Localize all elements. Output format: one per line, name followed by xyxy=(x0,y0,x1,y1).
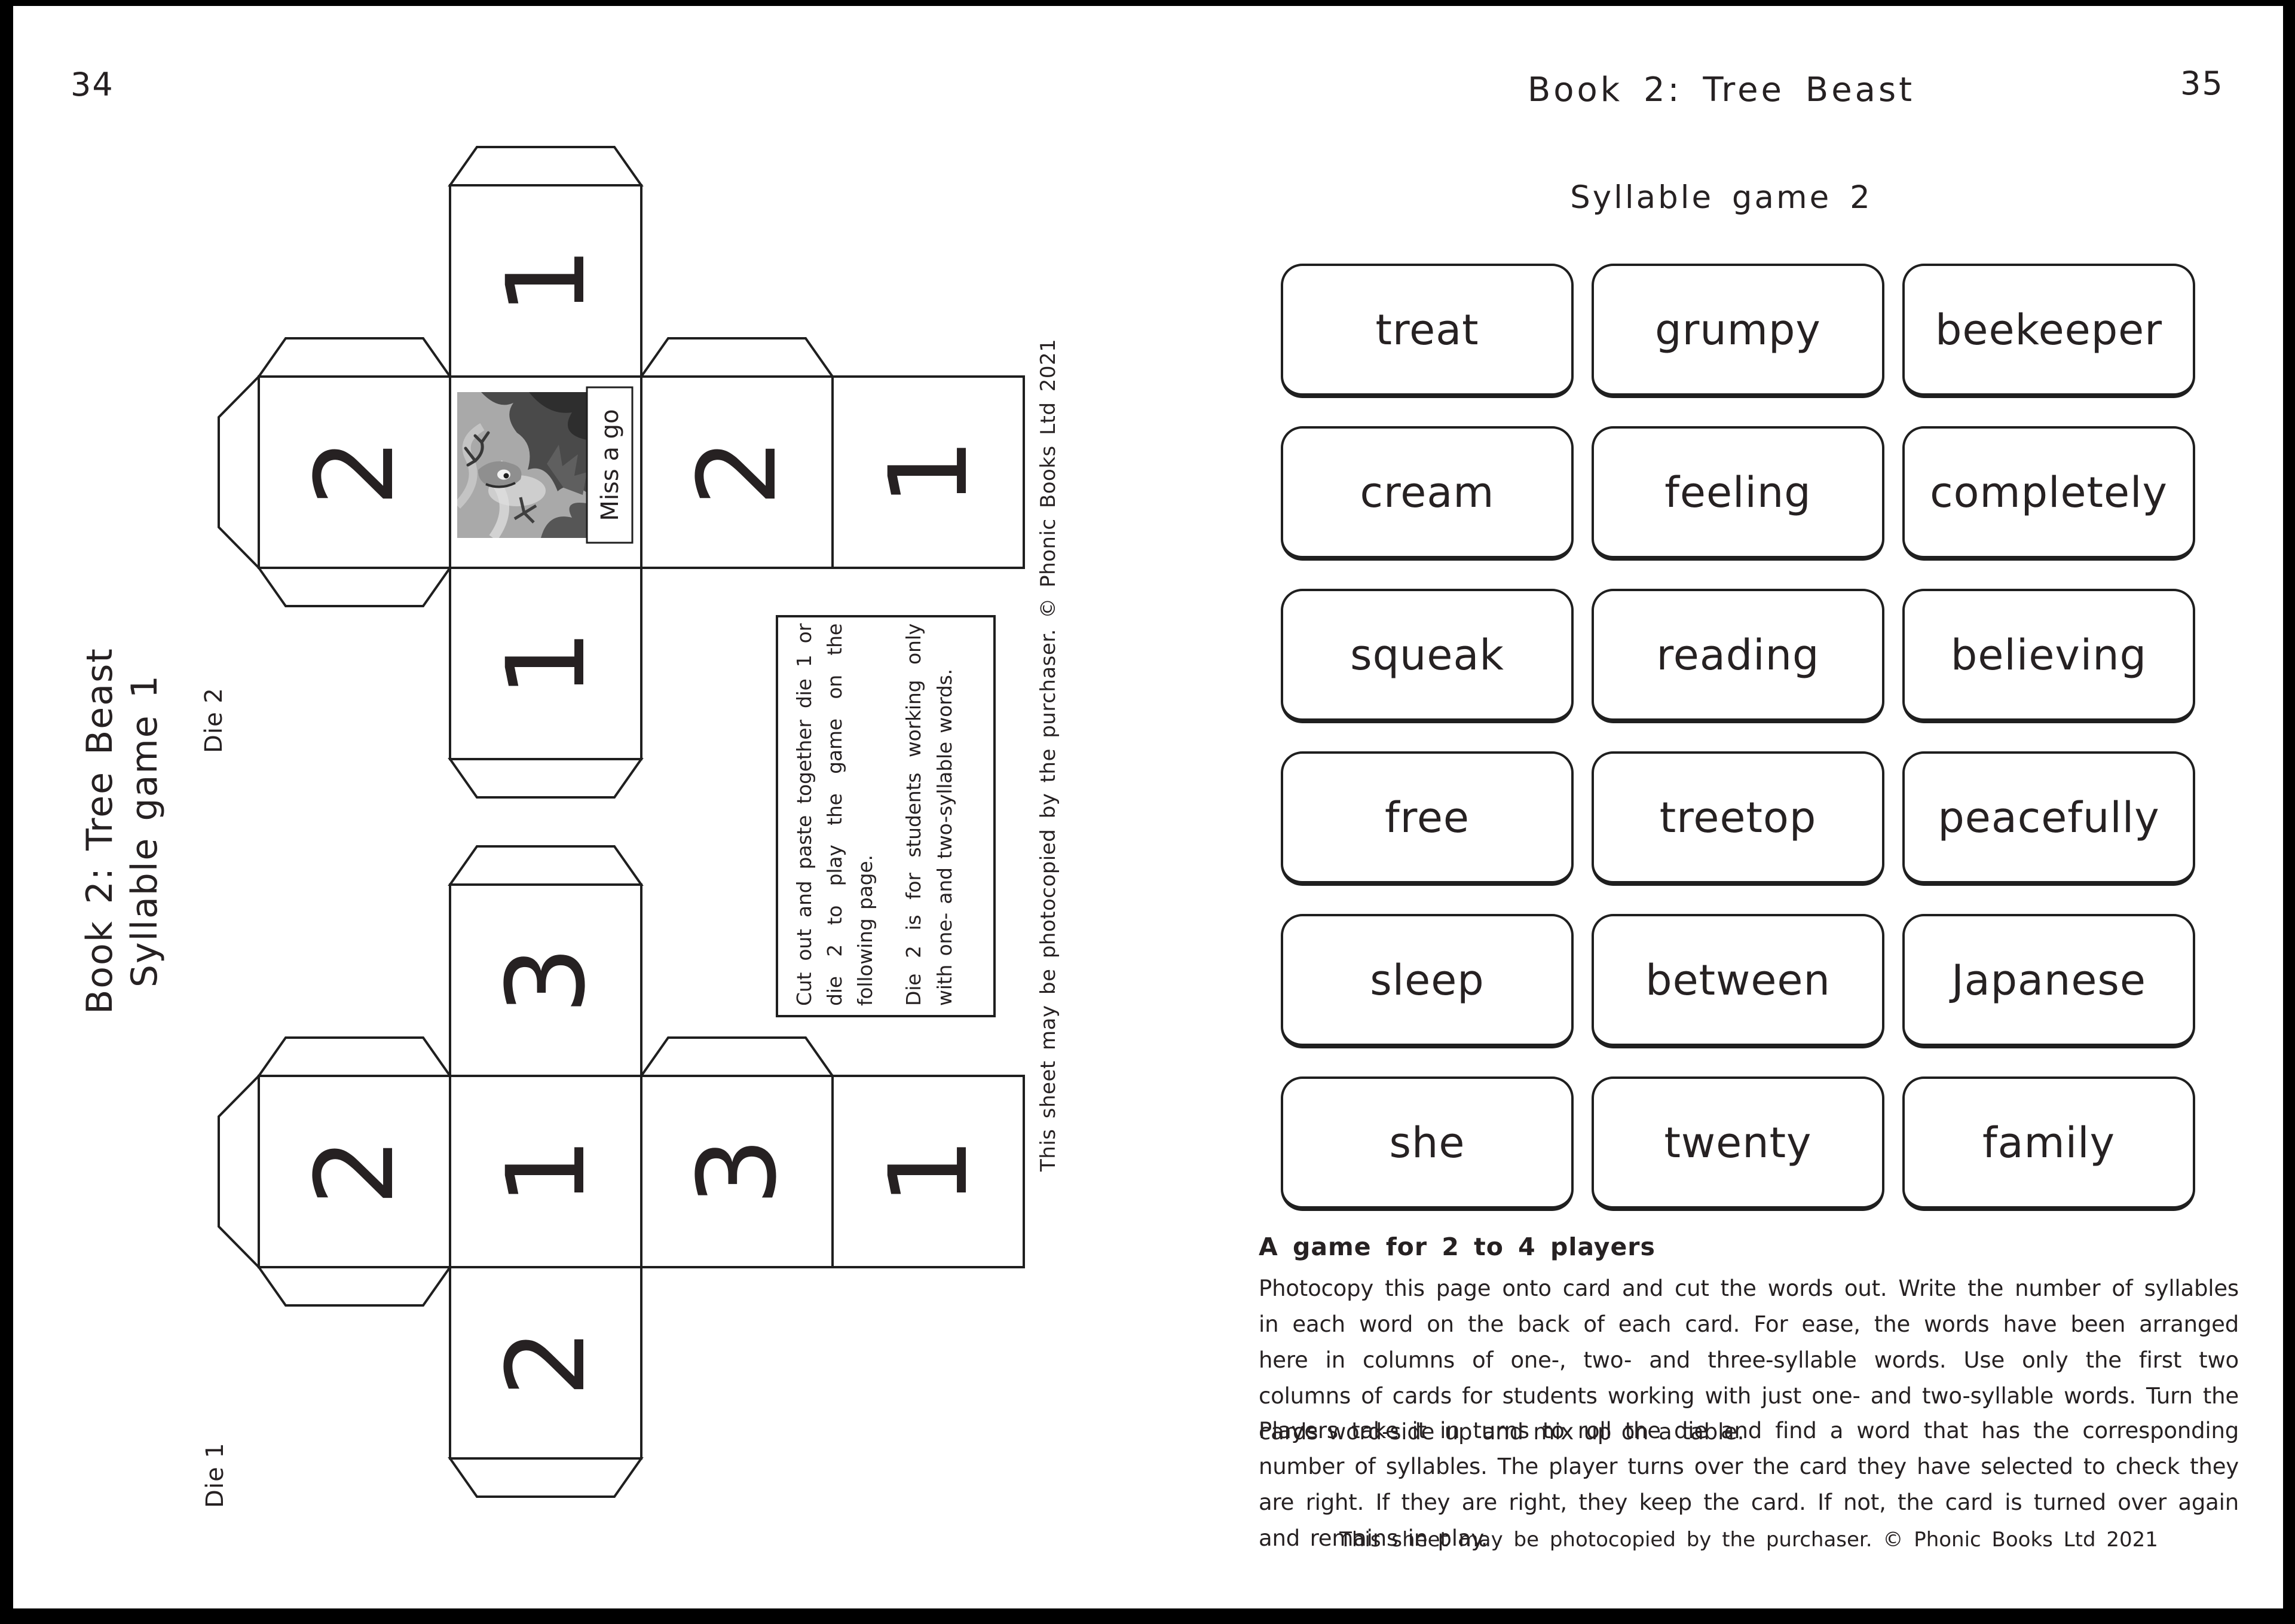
die2-tab-left-top xyxy=(259,338,450,377)
instruction-paragraph-1: Cut out and paste together die 1 or die … xyxy=(789,623,880,1006)
die1-tab-bottom xyxy=(450,1458,641,1497)
die1-tab-right-top xyxy=(641,1038,833,1076)
word-card: squeak xyxy=(1281,589,1574,723)
right-page-subtitle: Syllable game 2 xyxy=(1183,179,2259,216)
cutout-instruction-text: Cut out and paste together die 1 or die … xyxy=(789,623,983,1006)
word-card: cream xyxy=(1281,426,1574,561)
word-card: grumpy xyxy=(1592,264,1884,398)
right-page-copyright: This sheet may be photocopied by the pur… xyxy=(1259,1528,2239,1552)
left-title-line1: Book 2: Tree Beast xyxy=(78,640,123,1022)
tree-beast-illustration xyxy=(457,392,587,538)
die2-tab-right-top xyxy=(641,338,833,377)
die1-tab-left-bottom xyxy=(259,1267,450,1305)
die1-number-bottom: 2 xyxy=(484,1329,609,1397)
word-card: family xyxy=(1902,1076,2195,1211)
right-page-title: Book 2: Tree Beast xyxy=(1183,71,2259,109)
die1-number-right: 3 xyxy=(675,1137,800,1206)
die1-side-flap xyxy=(219,1076,259,1267)
players-heading: A game for 2 to 4 players xyxy=(1259,1232,2239,1261)
die2-number-far-right: 1 xyxy=(867,438,992,507)
word-card: sleep xyxy=(1281,914,1574,1048)
word-card: she xyxy=(1281,1076,1574,1211)
die2-number-top: 1 xyxy=(484,247,609,316)
page-number-left: 34 xyxy=(71,66,114,103)
cutout-instruction-box: Cut out and paste together die 1 or die … xyxy=(776,615,996,1017)
word-card-grid: treat grumpy beekeeper cream feeling com… xyxy=(1281,264,2195,1211)
die1-tab-left-top xyxy=(259,1038,450,1076)
left-page-copyright: This sheet may be photocopied by the pur… xyxy=(1036,454,1063,1172)
word-card: reading xyxy=(1592,589,1884,723)
die2-number-left: 2 xyxy=(293,438,418,507)
word-card: Japanese xyxy=(1902,914,2195,1048)
word-card: peacefully xyxy=(1902,751,2195,886)
left-page-rotated-title: Book 2: Tree Beast Syllable game 1 xyxy=(78,640,167,1022)
die1-number-center: 1 xyxy=(484,1137,609,1206)
word-card: beekeeper xyxy=(1902,264,2195,398)
die2-tab-top xyxy=(450,147,641,185)
word-card: treetop xyxy=(1592,751,1884,886)
word-card: twenty xyxy=(1592,1076,1884,1211)
word-card: believing xyxy=(1902,589,2195,723)
die2-side-flap xyxy=(219,377,259,568)
die1-number-far-right: 1 xyxy=(867,1137,992,1206)
die2-tab-bottom xyxy=(450,759,641,797)
die1-number-top: 3 xyxy=(484,946,609,1015)
miss-a-go-text: Miss a go xyxy=(596,409,624,521)
die1-number-left: 2 xyxy=(293,1137,418,1206)
die2-number-right: 2 xyxy=(675,438,800,507)
left-title-line2: Syllable game 1 xyxy=(123,640,167,1022)
word-card: treat xyxy=(1281,264,1574,398)
die2-number-bottom: 1 xyxy=(484,629,609,698)
word-card: completely xyxy=(1902,426,2195,561)
word-card: between xyxy=(1592,914,1884,1048)
word-card: free xyxy=(1281,751,1574,886)
word-card: feeling xyxy=(1592,426,1884,561)
die2-tab-left-bottom xyxy=(259,568,450,606)
instruction-paragraph-2: Die 2 is for students working only with … xyxy=(898,623,959,1006)
die1-tab-top xyxy=(450,846,641,885)
